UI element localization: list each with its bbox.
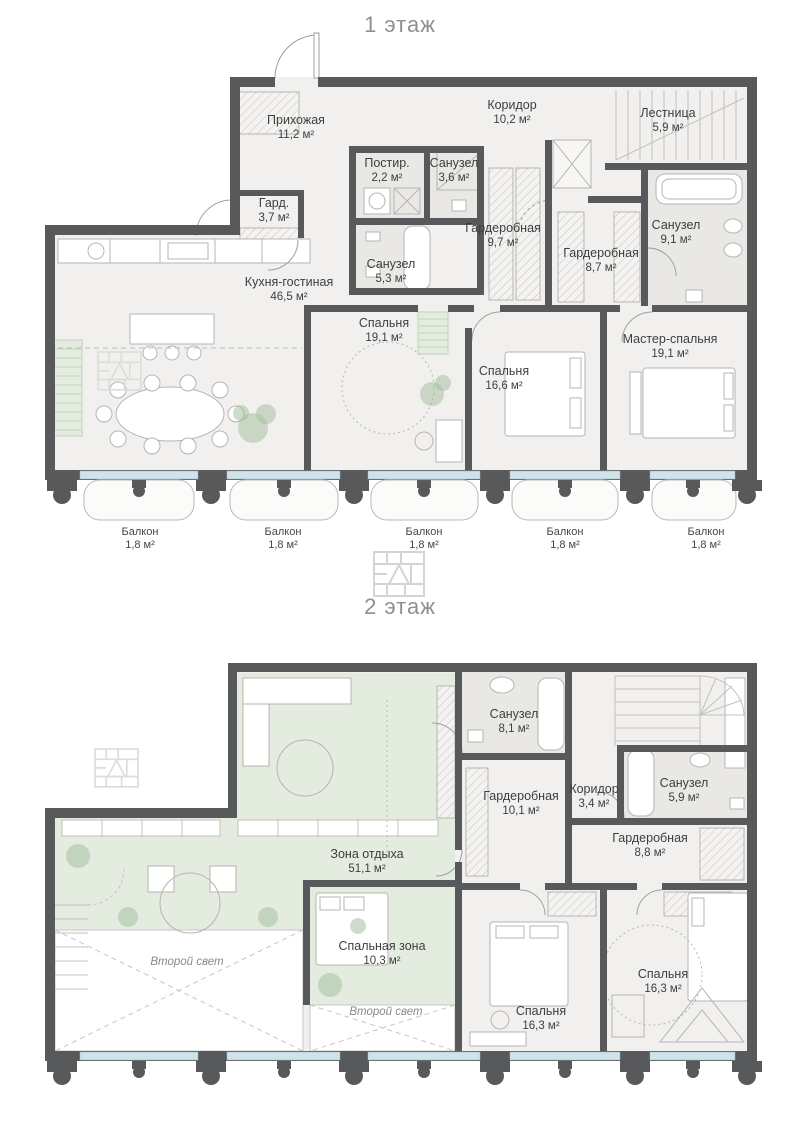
room-label-spalnya-16-6: Спальня 16,6 м² [479,364,529,393]
floorplan-page: 1 этаж 2 этаж Прихожая 11,2 м² Коридор 1… [0,0,800,1139]
room-label-garderobnaya-9-7: Гардеробная 9,7 м² [465,221,541,250]
room-label-garderobnaya-8-8: Гардеробная 8,8 м² [612,831,688,860]
room-label-koridor-f2: Коридор 3,4 м² [569,782,618,811]
room-label-sanuzel-5-9: Санузел 5,9 м² [660,776,709,805]
room-label-garderobnaya-10-1: Гардеробная 10,1 м² [483,789,559,818]
room-label-sanuzel-9-1: Санузел 9,1 м² [652,218,701,247]
void-label-vtoroy-svet-2: Второй свет [349,1006,422,1018]
balcony-label-5: Балкон 1,8 м² [688,526,725,553]
room-label-gard: Гард. 3,7 м² [259,196,290,225]
room-label-sanuzel-5-3: Санузел 5,3 м² [367,257,416,286]
room-label-spalnya-19-1: Спальня 19,1 м² [359,316,409,345]
room-label-zona-otdyha: Зона отдыха 51,1 м² [330,847,403,876]
floor1-title: 1 этаж [364,12,436,38]
room-label-lestnitsa: Лестница 5,9 м² [640,106,695,135]
balcony-label-1: Балкон 1,8 м² [122,526,159,553]
room-label-spalnya-16-3-right: Спальня 16,3 м² [638,967,688,996]
room-label-kuhnya-gostinaya: Кухня-гостиная 46,5 м² [245,275,333,304]
balcony-label-4: Балкон 1,8 м² [547,526,584,553]
void-label-vtoroy-svet-1: Второй свет [150,956,223,968]
room-label-koridor-f1: Коридор 10,2 м² [487,98,536,127]
balcony-label-2: Балкон 1,8 м² [265,526,302,553]
room-label-sanuzel-8-1: Санузел 8,1 м² [490,707,539,736]
balcony-label-3: Балкон 1,8 м² [406,526,443,553]
room-label-spalnya-16-3-left: Спальня 16,3 м² [516,1004,566,1033]
room-label-postirochnaya: Постир. 2,2 м² [364,156,409,185]
room-label-master-spalnya: Мастер-спальня 19,1 м² [623,332,718,361]
room-label-garderobnaya-8-7: Гардеробная 8,7 м² [563,246,639,275]
room-label-sanuzel-3-6: Санузел 3,6 м² [430,156,479,185]
room-label-spalnaya-zona: Спальная зона 10,3 м² [338,939,425,968]
room-label-prihozhaya: Прихожая 11,2 м² [267,113,325,142]
floor2-title: 2 этаж [364,594,436,620]
